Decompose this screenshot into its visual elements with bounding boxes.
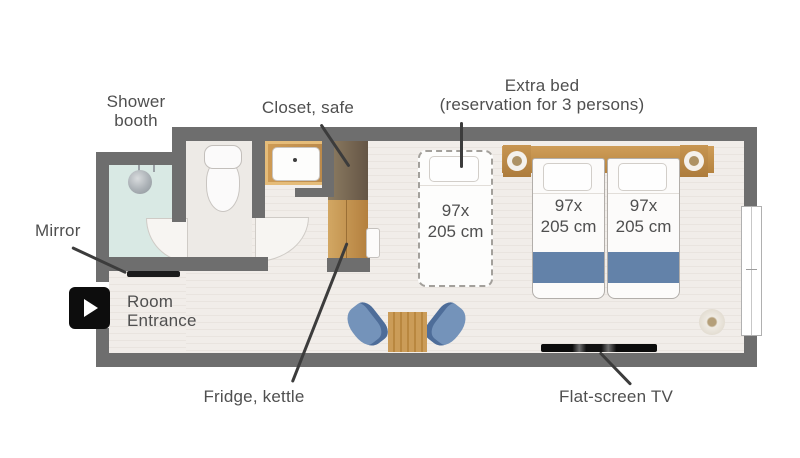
flat-screen-tv	[541, 344, 657, 352]
closet	[328, 141, 368, 200]
bed-size-line1: 97x	[608, 195, 679, 216]
label-room-entrance-line2: Entrance	[127, 311, 197, 330]
floor-lamp-icon	[699, 309, 725, 335]
window-pane-line	[751, 207, 752, 335]
fridge-cabinet	[328, 200, 368, 260]
lamp-dot	[512, 156, 522, 166]
wall-bottom	[96, 353, 757, 367]
headboard-lamp-right	[680, 145, 708, 177]
bed-size-line1: 97x	[533, 195, 604, 216]
label-mirror: Mirror	[35, 221, 81, 240]
bed-size-line1: 97x	[420, 200, 491, 221]
label-shower-booth-line1: Shower	[84, 92, 188, 111]
mirror	[127, 271, 180, 277]
pointer-line-extra-bed	[460, 122, 463, 168]
label-extra-bed-line1: Extra bed	[412, 76, 672, 95]
pillow	[618, 163, 667, 191]
window	[741, 206, 762, 336]
table	[388, 312, 427, 352]
toilet-tank	[204, 145, 242, 169]
sheet-line	[608, 193, 679, 194]
label-closet-safe: Closet, safe	[253, 98, 363, 117]
bed-size-line2: 205 cm	[608, 216, 679, 237]
window-tick	[746, 269, 757, 270]
sheet-line	[533, 193, 604, 194]
wall-bathroom-bottom	[109, 257, 268, 271]
play-button[interactable]	[69, 287, 110, 329]
shower-head-icon	[128, 170, 152, 194]
bed-size-line2: 205 cm	[533, 216, 604, 237]
sheet-line	[420, 185, 491, 186]
sink-faucet-icon	[293, 158, 297, 162]
blanket	[608, 252, 679, 283]
twin-bed-1: 97x 205 cm	[532, 158, 605, 299]
twin-bed-1-size-label: 97x 205 cm	[533, 195, 604, 237]
label-extra-bed-line2: (reservation for 3 persons)	[412, 95, 672, 114]
blanket	[533, 252, 604, 283]
label-room-entrance: Room Entrance	[127, 292, 197, 330]
extra-bed-size-label: 97x 205 cm	[420, 200, 491, 242]
fridge-cabinet-seam	[346, 200, 347, 260]
kettle	[366, 228, 380, 258]
pillow	[429, 156, 479, 182]
play-icon	[84, 299, 98, 317]
headboard-lamp-left	[503, 145, 531, 177]
lamp-dot	[689, 156, 699, 166]
label-extra-bed: Extra bed (reservation for 3 persons)	[412, 76, 672, 114]
sink-basin	[272, 147, 320, 181]
wall-toilet-right	[252, 141, 265, 218]
wall-shower-divider	[172, 127, 186, 222]
bed-size-line2: 205 cm	[420, 221, 491, 242]
floor-plan-canvas: 97x 205 cm 97x 205 cm 97x 205 cm Shower …	[0, 0, 800, 458]
wall-fridge-stub	[327, 258, 370, 272]
twin-bed-2-size-label: 97x 205 cm	[608, 195, 679, 237]
label-fridge-kettle: Fridge, kettle	[194, 387, 314, 406]
label-shower-booth: Shower booth	[84, 92, 188, 130]
label-room-entrance-line1: Room	[127, 292, 197, 311]
label-flat-screen-tv: Flat-screen TV	[546, 387, 686, 406]
wall-sink-nook-bottom	[295, 188, 334, 197]
twin-bed-2: 97x 205 cm	[607, 158, 680, 299]
pillow	[543, 163, 592, 191]
label-shower-booth-line2: booth	[84, 111, 188, 130]
extra-bed: 97x 205 cm	[418, 150, 493, 287]
wall-top	[172, 127, 757, 141]
